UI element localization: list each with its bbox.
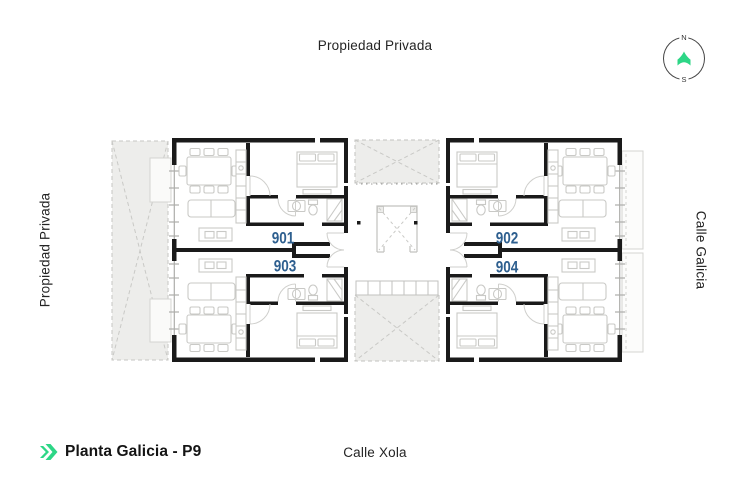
plan-title-text: Planta Galicia - P9 — [65, 443, 201, 461]
unit-901-plan — [169, 138, 348, 250]
unit-902-plan — [446, 138, 625, 250]
unit-904-plan — [446, 250, 625, 362]
core-elevator-stairs — [356, 184, 438, 295]
label-calle-xola: Calle Xola — [343, 445, 407, 460]
page-title: Planta Galicia - P9 — [40, 443, 201, 461]
logo-chevron-icon — [40, 444, 58, 460]
compass-north-arrow-icon — [678, 51, 691, 65]
label-calle-galicia: Calle Galicia — [694, 211, 709, 289]
compass-icon: N S — [663, 37, 705, 80]
unit-number-904[interactable]: 904 — [496, 259, 519, 278]
compass-south-label: S — [679, 76, 688, 84]
floor-plan-drawing — [0, 0, 749, 500]
compass-north-label: N — [679, 34, 688, 42]
unit-number-901[interactable]: 901 — [272, 230, 295, 249]
unit-number-903[interactable]: 903 — [274, 258, 297, 277]
label-propiedad-privada-top: Propiedad Privada — [318, 38, 432, 53]
floor-plan-page: Propiedad Privada Propiedad Privada Call… — [0, 0, 749, 500]
label-propiedad-privada-left: Propiedad Privada — [38, 193, 53, 307]
balconies — [622, 151, 643, 352]
unit-903-plan — [169, 250, 348, 362]
unit-number-902[interactable]: 902 — [496, 230, 519, 249]
